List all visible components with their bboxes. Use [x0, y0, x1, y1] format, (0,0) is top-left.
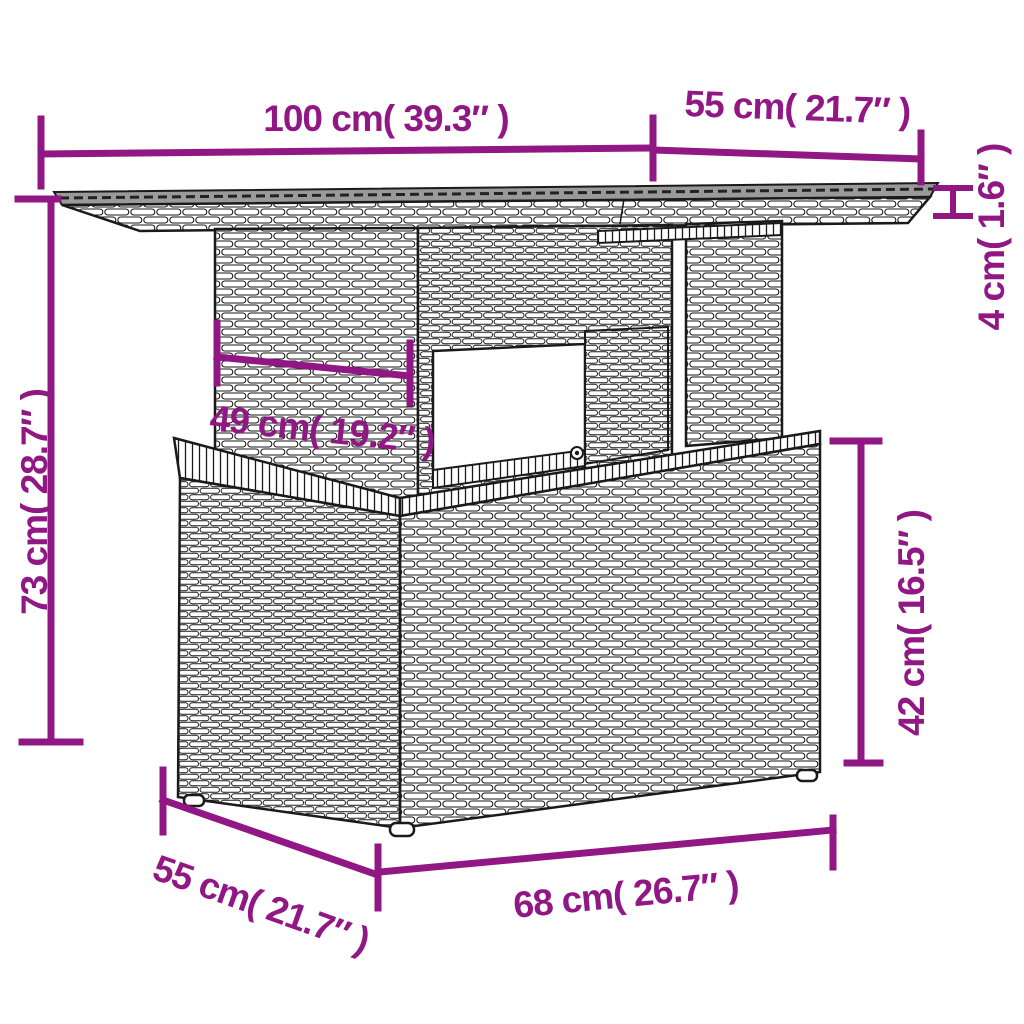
base-box [174, 431, 820, 836]
product-dimension-diagram: 100 cm( 39.3″ ) 55 cm( 21.7″ ) 4 cm( 1.6… [0, 0, 1024, 1024]
dimension-line [380, 830, 833, 872]
label-tabletop-length: 100 cm( 39.3″ ) [263, 98, 508, 139]
label-base-height: 42 cm( 16.5″ ) [891, 510, 932, 736]
base-left-face [178, 478, 400, 828]
dimension-tabletop-thickness [936, 188, 970, 216]
pedestal-rear-column [686, 221, 782, 446]
base-foot-right [797, 770, 817, 781]
dimension-base-height [833, 441, 880, 763]
pedestal-inner-panel [585, 327, 668, 464]
pedestal-window-opening [433, 344, 585, 471]
label-tabletop-thickness: 4 cm( 1.6″ ) [971, 144, 1012, 331]
dimension-line [41, 148, 653, 154]
diagram-canvas: 100 cm( 39.3″ ) 55 cm( 21.7″ ) 4 cm( 1.6… [0, 0, 1024, 1024]
label-total-height: 73 cm( 28.7″ ) [14, 389, 55, 615]
label-tabletop-depth: 55 cm( 21.7″ ) [684, 83, 911, 132]
base-foot-corner [390, 823, 414, 836]
tabletop [54, 183, 938, 231]
label-base-width: 68 cm( 26.7″ ) [511, 863, 740, 925]
dimension-base-width [380, 818, 833, 872]
connector-knob-dot [575, 451, 579, 455]
dimension-line [653, 150, 921, 159]
base-foot-left [184, 795, 204, 806]
dimension-tabletop-depth [653, 133, 921, 182]
